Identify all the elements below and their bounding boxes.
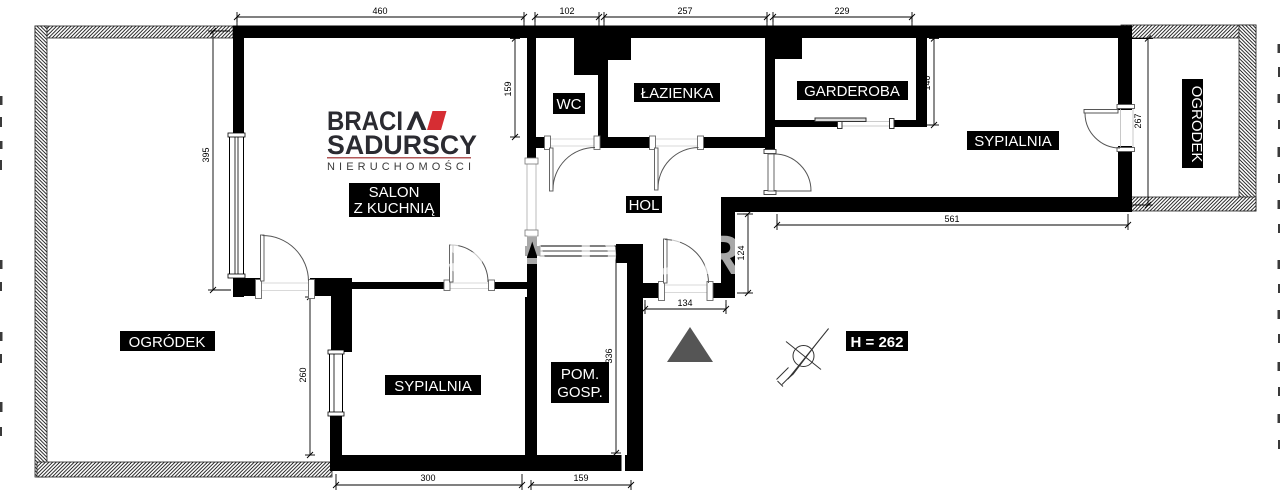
svg-text:ŁAZIENKA: ŁAZIENKA (641, 85, 714, 102)
svg-text:D: D (578, 223, 618, 286)
svg-text:R: R (701, 223, 741, 286)
svg-text:SADURSCY: SADURSCY (327, 130, 477, 160)
svg-text:POM.: POM. (561, 366, 599, 383)
svg-text:257: 257 (677, 6, 692, 16)
svg-text:A: A (512, 223, 552, 286)
svg-text:134: 134 (677, 298, 692, 308)
svg-text:SYPIALNIA: SYPIALNIA (974, 133, 1052, 150)
svg-text:HOL: HOL (629, 197, 660, 214)
svg-text:WC: WC (557, 96, 582, 113)
svg-text:395: 395 (201, 147, 211, 162)
svg-text:OGRÓDEK: OGRÓDEK (129, 334, 206, 351)
svg-text:NIERUCHOMOŚCI: NIERUCHOMOŚCI (327, 160, 471, 173)
svg-text:140: 140 (922, 75, 932, 90)
svg-text:102: 102 (559, 6, 574, 16)
svg-text:SALON: SALON (369, 184, 420, 201)
svg-text:561: 561 (944, 214, 959, 224)
svg-text:Y: Y (905, 223, 942, 286)
svg-text:SYPIALNIA: SYPIALNIA (394, 378, 472, 395)
svg-text:H = 262: H = 262 (851, 334, 904, 351)
svg-text:460: 460 (372, 6, 387, 16)
svg-text:260: 260 (298, 367, 308, 382)
svg-text:267: 267 (1133, 113, 1143, 128)
svg-text:159: 159 (503, 81, 513, 96)
svg-text:S: S (774, 223, 811, 286)
svg-text:300: 300 (420, 473, 435, 483)
svg-text:159: 159 (573, 473, 588, 483)
svg-text:GARDEROBA: GARDEROBA (804, 83, 900, 100)
svg-text:S: S (447, 223, 484, 286)
svg-text:336: 336 (604, 348, 614, 363)
svg-text:OGRÓDEK: OGRÓDEK (1188, 86, 1205, 163)
svg-text:U: U (643, 223, 683, 286)
svg-text:229: 229 (834, 6, 849, 16)
svg-text:C: C (839, 223, 879, 286)
svg-text:GOSP.: GOSP. (557, 384, 603, 401)
svg-text:Z KUCHNIĄ: Z KUCHNIĄ (354, 200, 436, 217)
